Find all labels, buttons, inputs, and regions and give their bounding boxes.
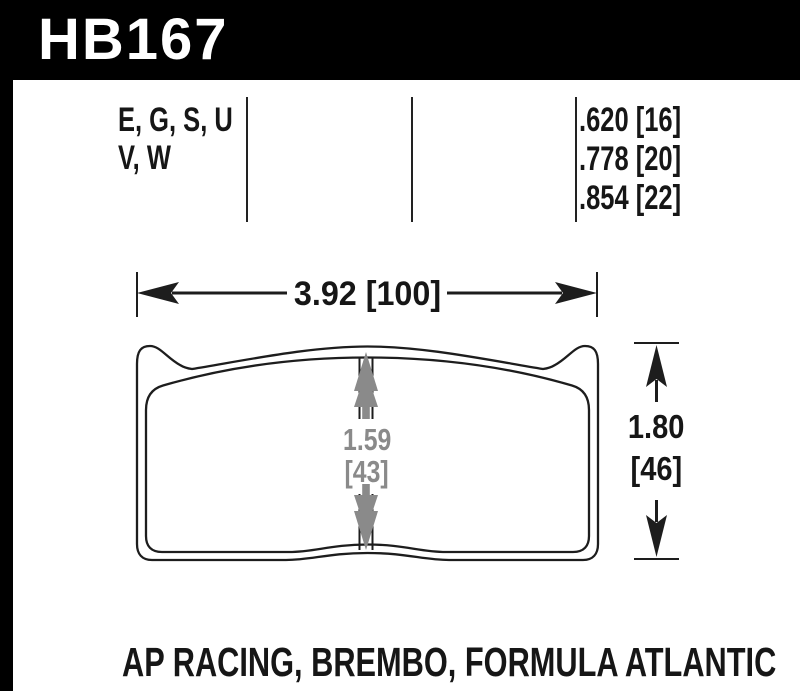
pad-height-dimension-label: 1.59	[297, 424, 437, 455]
application-caption-text: AP RACING, BREMBO, FORMULA ATLANTIC	[122, 642, 776, 683]
overall-height-mm: [46]	[630, 452, 682, 485]
overall-height-dimension-mm-label: [46]	[596, 452, 716, 485]
pad-height-inches: 1.59	[343, 424, 391, 455]
overall-height-dimension-label: 1.80	[596, 410, 716, 443]
width-dimension-label: 3.92 [100]	[267, 277, 467, 311]
application-caption: AP RACING, BREMBO, FORMULA ATLANTIC	[13, 642, 800, 683]
pad-drawing-canvas	[0, 0, 800, 691]
overall-height-inches: 1.80	[628, 410, 685, 443]
pad-height-mm: [43]	[345, 456, 389, 487]
width-dimension-value: 3.92 [100]	[293, 277, 440, 311]
pad-height-dimension-mm-label: [43]	[297, 456, 437, 487]
